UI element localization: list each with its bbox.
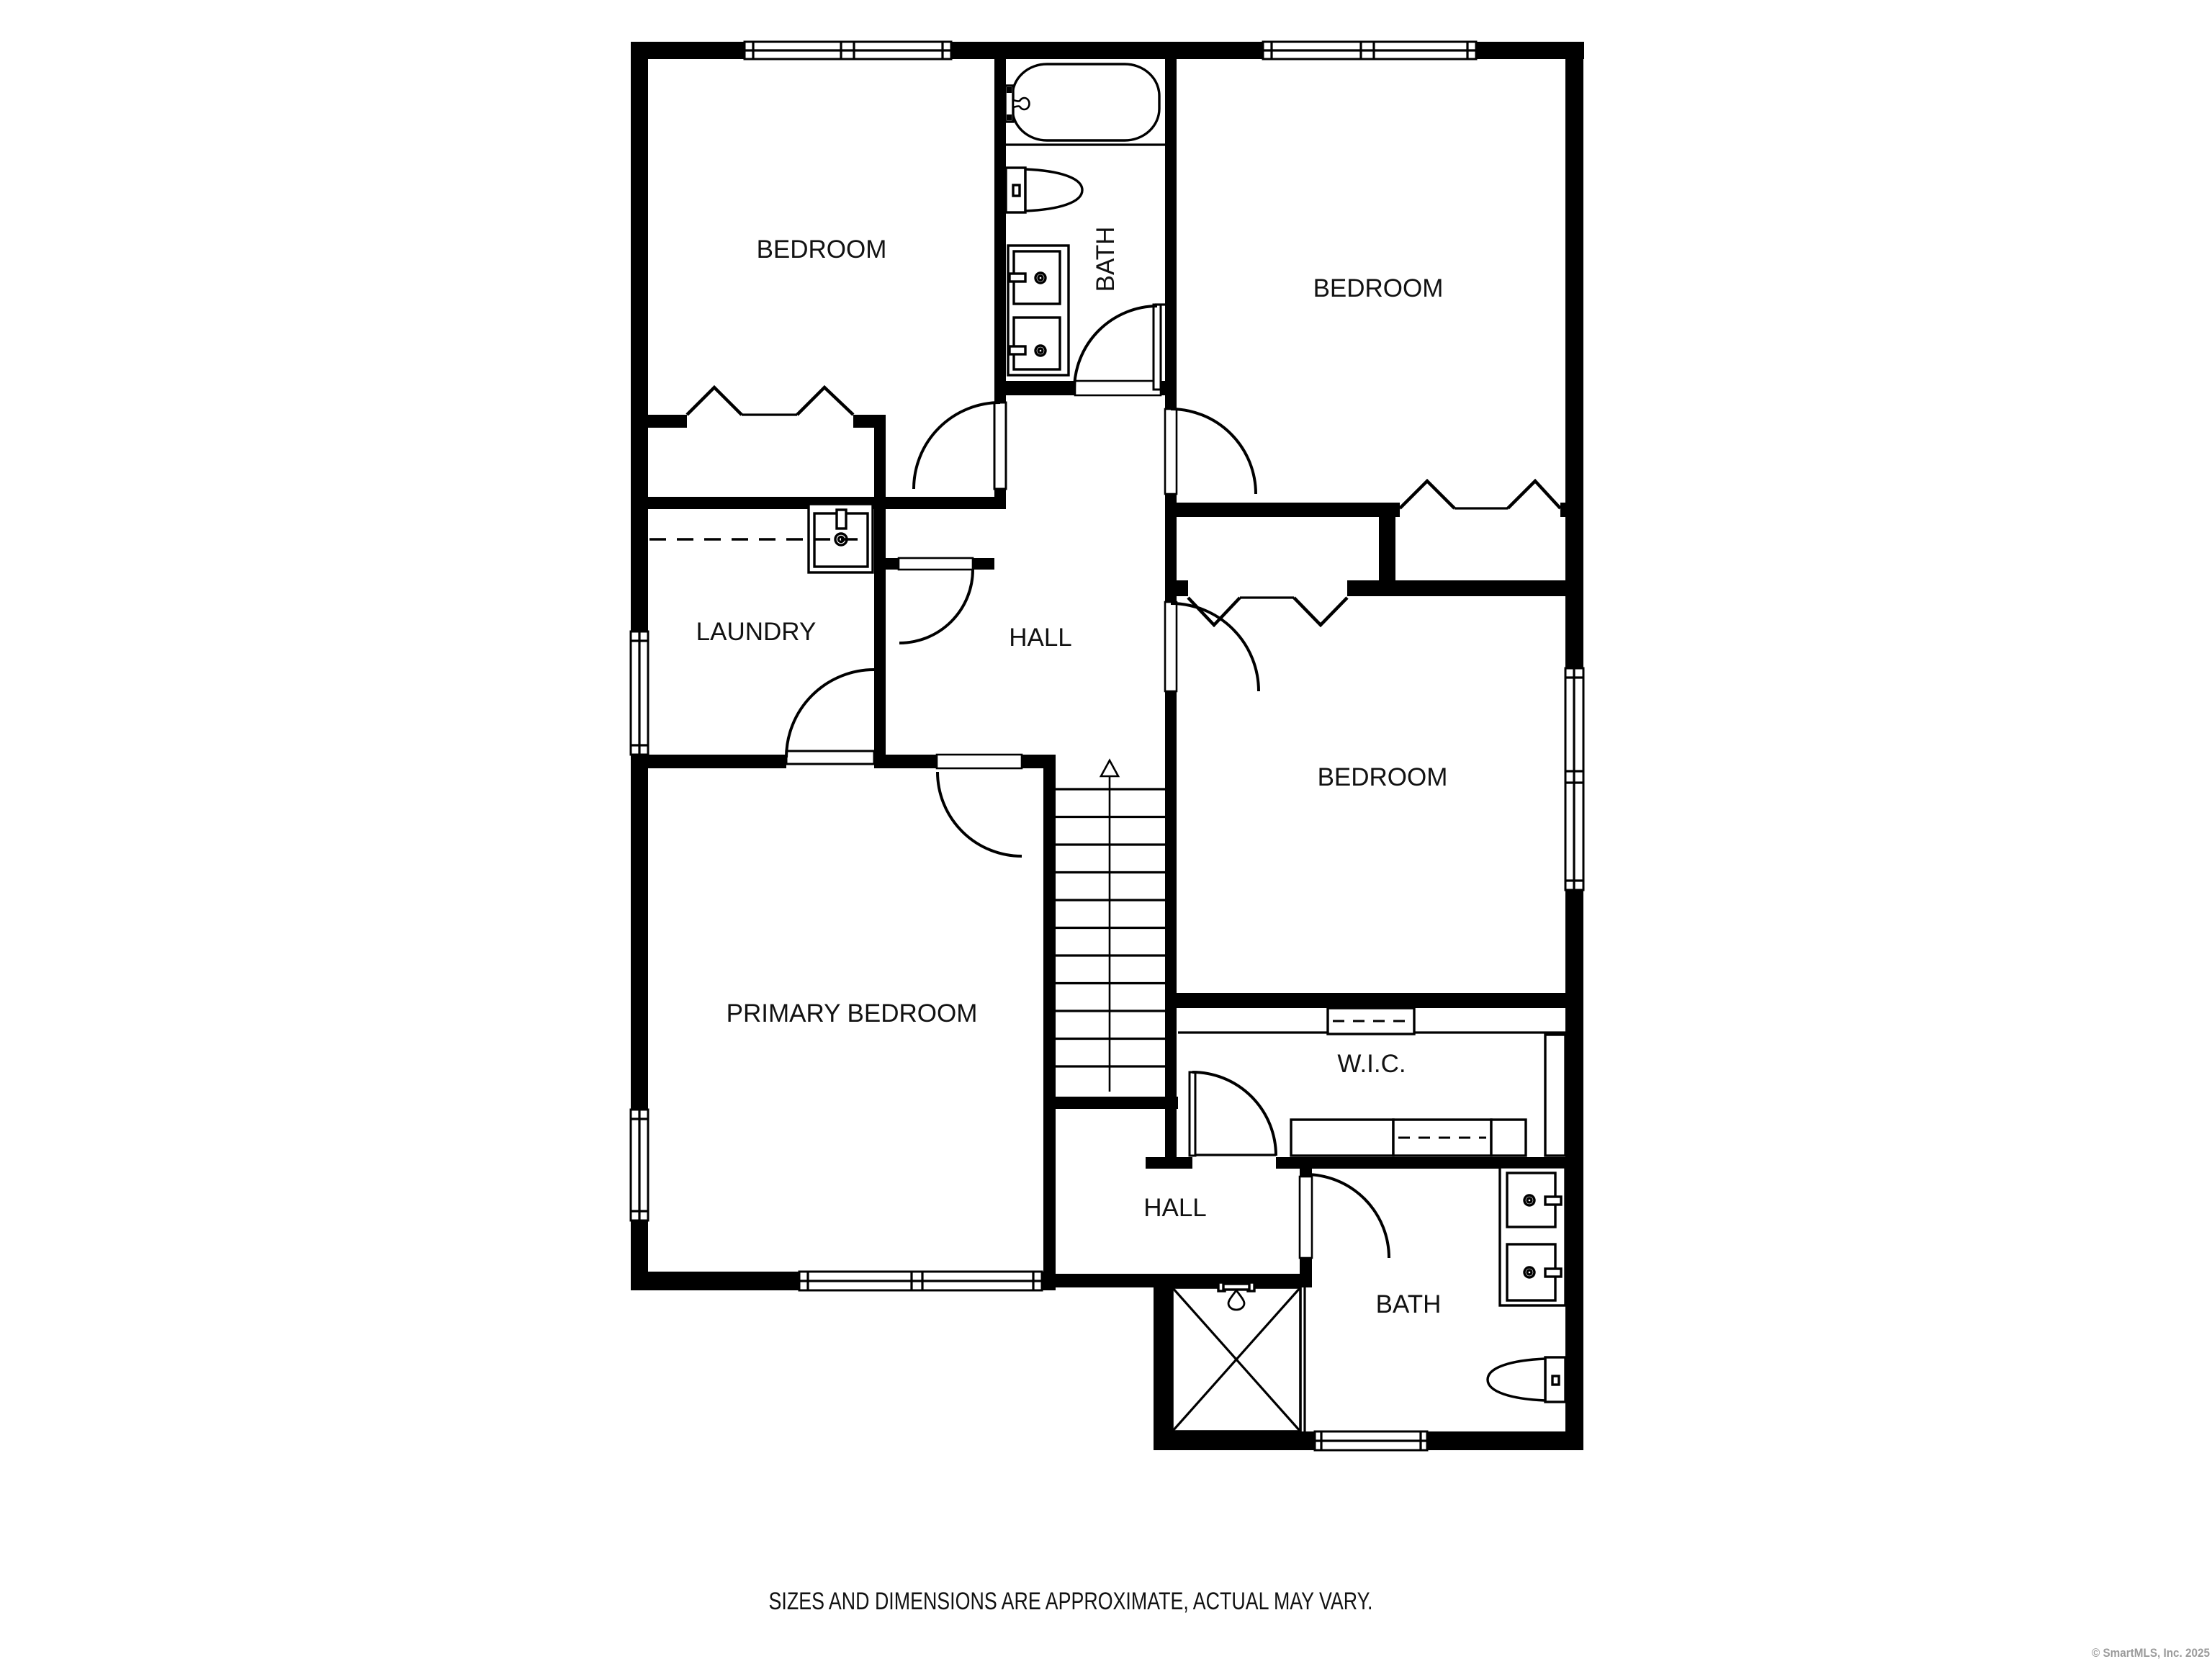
- svg-text:HALL: HALL: [1143, 1194, 1207, 1222]
- svg-text:BEDROOM: BEDROOM: [757, 235, 887, 264]
- svg-text:BEDROOM: BEDROOM: [1313, 274, 1444, 302]
- svg-text:© SmartMLS, Inc. 2025: © SmartMLS, Inc. 2025: [2092, 1646, 2210, 1659]
- svg-text:BATH: BATH: [1092, 227, 1120, 292]
- svg-text:W.I.C.: W.I.C.: [1337, 1050, 1406, 1078]
- svg-text:BATH: BATH: [1376, 1290, 1442, 1318]
- svg-text:HALL: HALL: [1009, 624, 1072, 652]
- svg-text:PRIMARY BEDROOM: PRIMARY BEDROOM: [727, 999, 978, 1028]
- svg-text:SIZES AND DIMENSIONS ARE APPRO: SIZES AND DIMENSIONS ARE APPROXIMATE, AC…: [769, 1588, 1373, 1615]
- svg-text:LAUNDRY: LAUNDRY: [696, 618, 817, 646]
- svg-text:BEDROOM: BEDROOM: [1318, 763, 1448, 791]
